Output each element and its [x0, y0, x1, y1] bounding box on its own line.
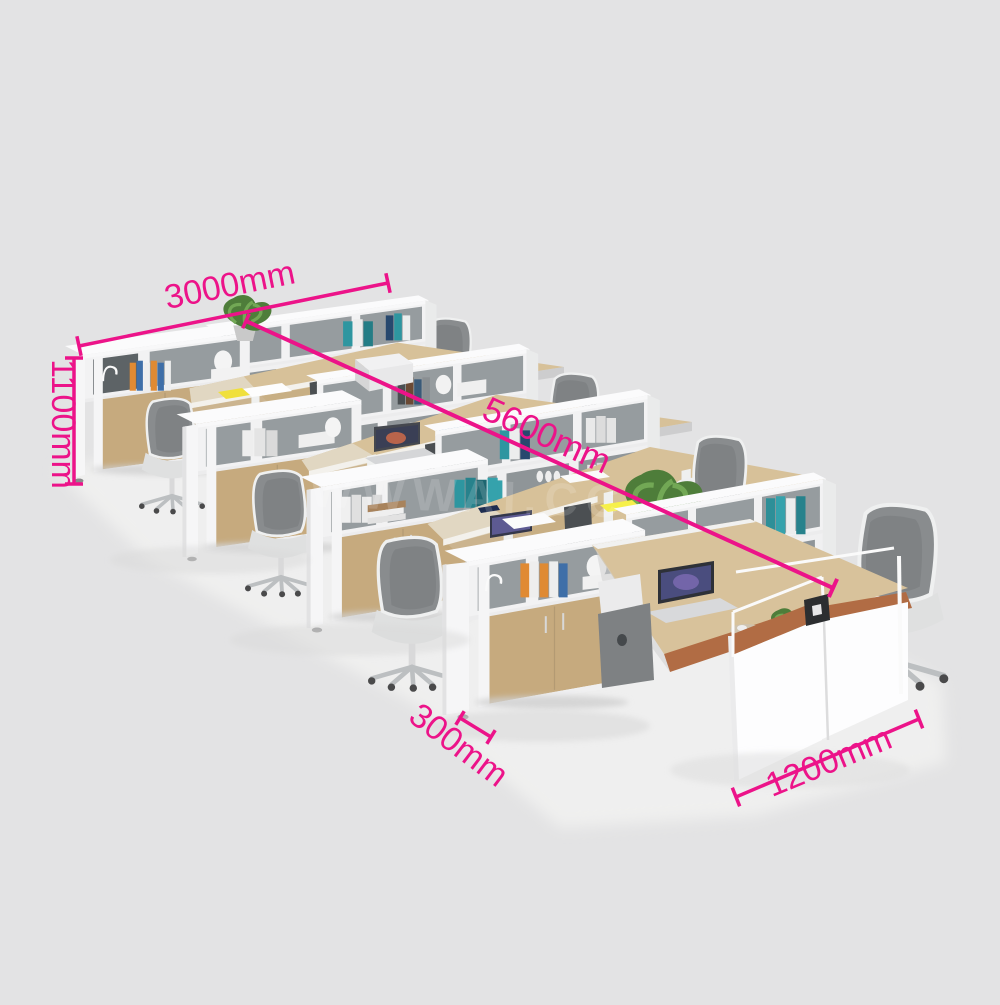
svg-text:1100mm: 1100mm [44, 359, 82, 489]
